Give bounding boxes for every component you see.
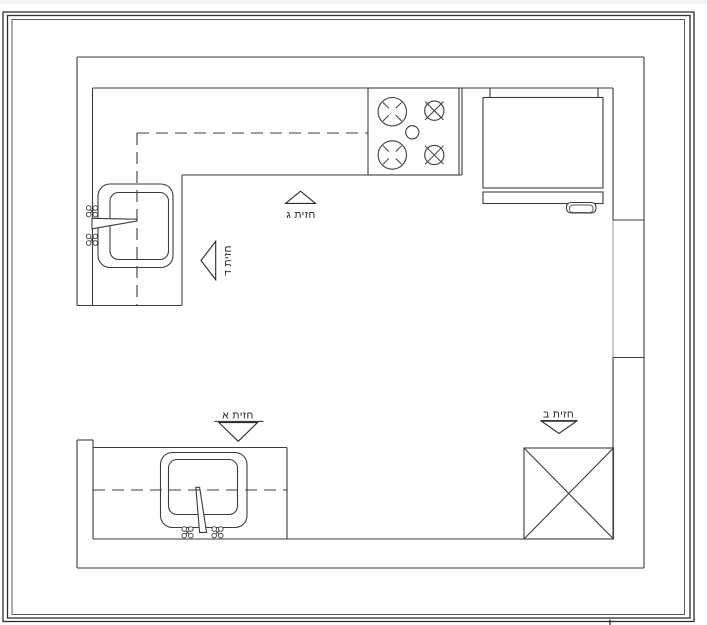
fridge-handle (567, 203, 597, 214)
elevation-label-text: חזית א (222, 411, 253, 422)
arrow-left-icon (201, 241, 216, 279)
refrigerator (483, 88, 603, 213)
elevation-label-text: חזית ג (286, 210, 315, 221)
burner-icon (378, 98, 406, 126)
burner-icon (425, 145, 444, 164)
elevation-label-text: חזית ב (543, 410, 574, 421)
faucet-valve-icon (182, 527, 193, 538)
burner-icon (378, 141, 406, 169)
sink-top-left (86, 184, 173, 268)
cooktop (368, 88, 459, 175)
elevation-label-b: חזית ב (541, 410, 578, 434)
floor-plan-canvas: חזית ג חזית ד חזית א חזית ב (0, 0, 707, 625)
page-edge-band (0, 0, 707, 4)
elevation-label-text: חזית ד (223, 245, 234, 276)
arrow-down-icon (219, 423, 258, 442)
cooktop-knob (406, 126, 419, 139)
sink-bottom (161, 453, 248, 538)
elevation-label-d: חזית ד (201, 241, 234, 279)
floor-plan-drawing: חזית ג חזית ד חזית א חזית ב (0, 0, 707, 625)
sink-basin-inner (110, 193, 169, 260)
faucet-valve-icon (212, 527, 223, 538)
x-cabinet (524, 448, 614, 539)
arrow-down-icon (542, 421, 577, 433)
fridge-door (483, 192, 603, 204)
burner-icon (425, 101, 444, 120)
fridge-body (483, 98, 603, 189)
elevation-label-c: חזית ג (286, 191, 316, 221)
elevation-label-a: חזית א (215, 411, 264, 442)
arrow-up-icon (286, 191, 316, 203)
